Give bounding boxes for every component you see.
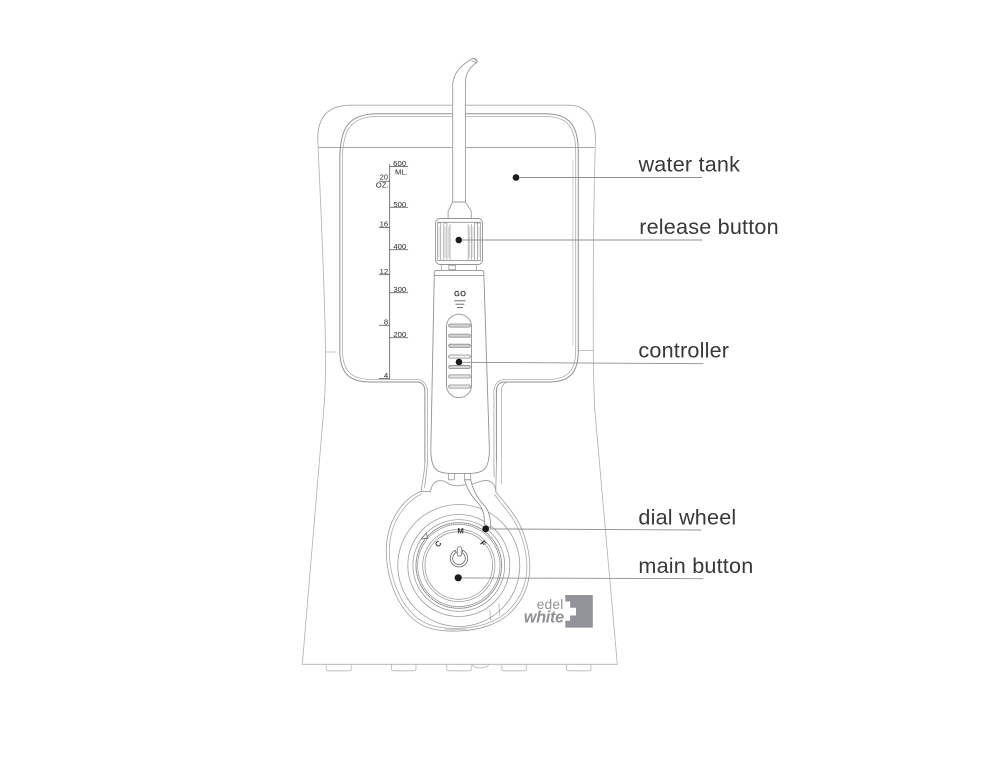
svg-text:release button: release button: [639, 214, 779, 239]
svg-text:white: white: [524, 608, 564, 626]
svg-text:ML.: ML.: [395, 167, 408, 176]
svg-text:water tank: water tank: [638, 151, 741, 176]
svg-text:200: 200: [393, 330, 406, 339]
svg-text:controller: controller: [638, 337, 729, 362]
svg-text:16: 16: [380, 220, 389, 229]
svg-text:8: 8: [384, 317, 388, 326]
svg-text:4: 4: [384, 371, 389, 380]
svg-text:OZ.: OZ.: [376, 181, 389, 190]
svg-text:12: 12: [380, 267, 389, 276]
svg-text:main button: main button: [638, 553, 753, 578]
svg-text:dial wheel: dial wheel: [638, 504, 736, 529]
svg-text:300: 300: [393, 285, 406, 294]
svg-text:400: 400: [393, 242, 406, 251]
svg-text:500: 500: [393, 200, 406, 209]
